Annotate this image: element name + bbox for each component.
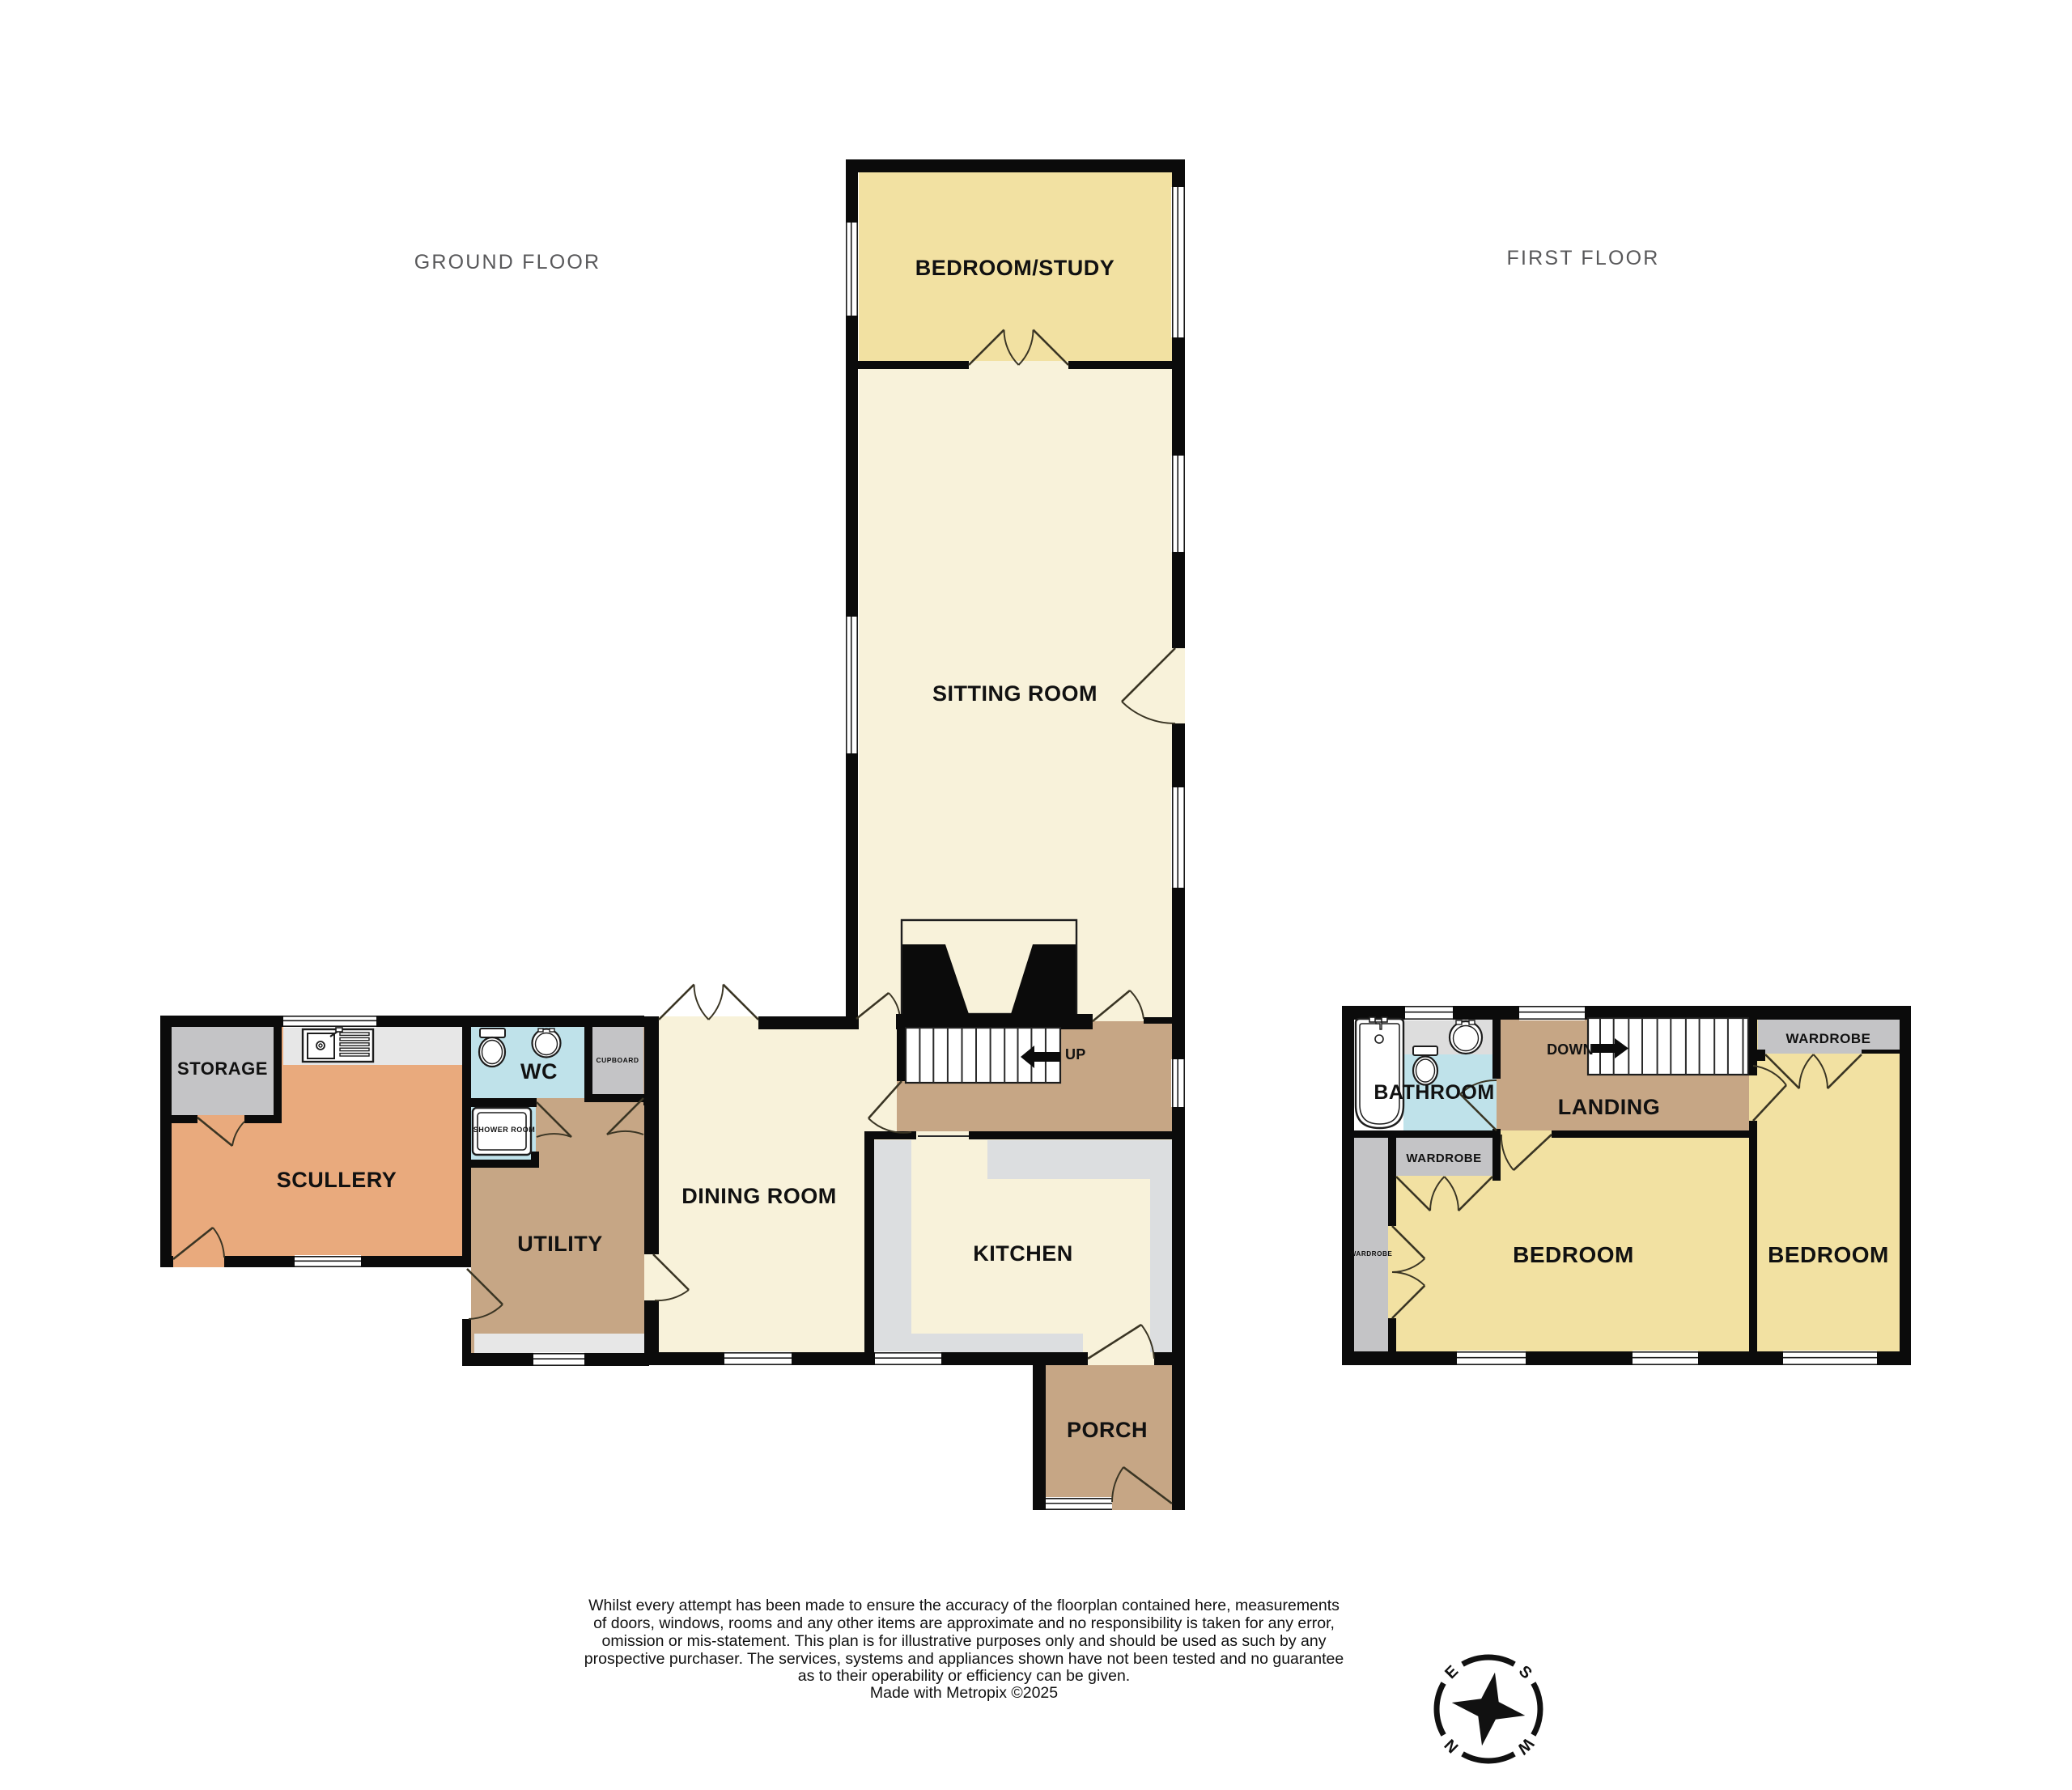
svg-text:Whilst every attempt has been: Whilst every attempt has been made to en…: [588, 1597, 1340, 1614]
svg-text:GROUND FLOOR: GROUND FLOOR: [414, 251, 601, 274]
svg-text:as to their operability or eff: as to their operability or efficiency ca…: [798, 1667, 1130, 1685]
svg-text:WARDROBE: WARDROBE: [1785, 1031, 1870, 1046]
svg-text:BEDROOM: BEDROOM: [1513, 1242, 1634, 1267]
svg-text:UTILITY: UTILITY: [517, 1232, 603, 1256]
svg-text:PORCH: PORCH: [1067, 1418, 1148, 1442]
svg-text:LANDING: LANDING: [1558, 1095, 1661, 1119]
svg-text:BEDROOM: BEDROOM: [1768, 1242, 1889, 1267]
svg-text:SITTING ROOM: SITTING ROOM: [932, 681, 1098, 706]
svg-text:WARDROBE: WARDROBE: [1406, 1152, 1481, 1165]
svg-text:KITCHEN: KITCHEN: [973, 1241, 1073, 1266]
svg-text:BEDROOM/STUDY: BEDROOM/STUDY: [915, 256, 1115, 280]
svg-text:WARDROBE: WARDROBE: [1350, 1250, 1393, 1258]
svg-text:prospective purchaser. The ser: prospective purchaser. The services, sys…: [584, 1650, 1344, 1668]
svg-text:STORAGE: STORAGE: [177, 1058, 268, 1079]
svg-text:BATHROOM: BATHROOM: [1374, 1081, 1494, 1104]
svg-text:UP: UP: [1065, 1046, 1085, 1063]
svg-text:FIRST FLOOR: FIRST FLOOR: [1506, 247, 1659, 269]
svg-text:WC: WC: [520, 1059, 558, 1084]
svg-text:SHOWER ROOM: SHOWER ROOM: [473, 1126, 536, 1134]
svg-text:DINING ROOM: DINING ROOM: [681, 1184, 837, 1208]
svg-text:DOWN: DOWN: [1547, 1041, 1594, 1058]
svg-text:of doors, windows, rooms and a: of doors, windows, rooms and any other i…: [593, 1614, 1335, 1632]
svg-text:CUPBOARD: CUPBOARD: [596, 1056, 639, 1064]
svg-text:SCULLERY: SCULLERY: [277, 1168, 397, 1192]
svg-text:omission or mis-statement. Thi: omission or mis-statement. This plan is …: [602, 1632, 1327, 1650]
svg-text:Made with Metropix ©2025: Made with Metropix ©2025: [870, 1684, 1058, 1702]
